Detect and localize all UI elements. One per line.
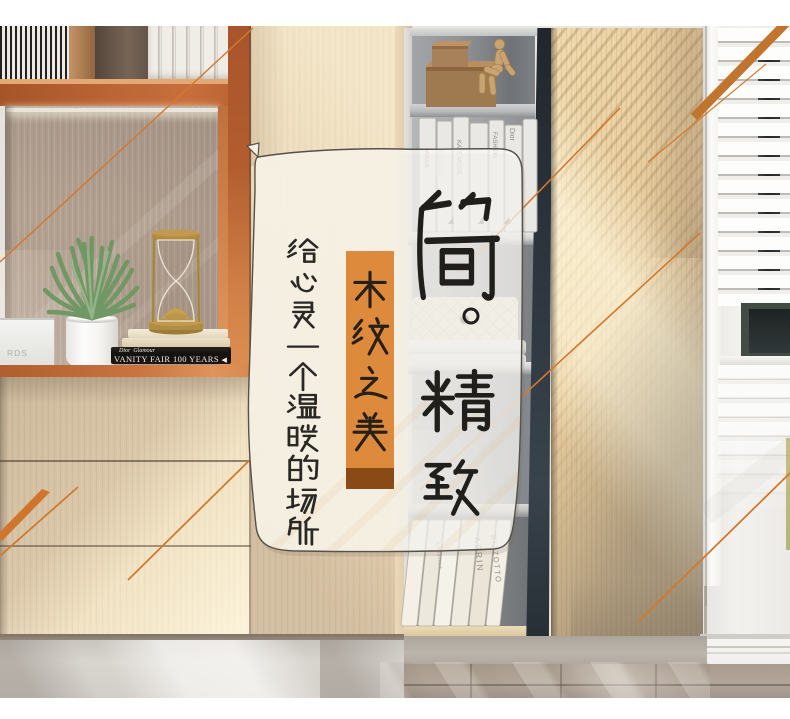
svg-text:Dior: Dior [508, 128, 515, 142]
